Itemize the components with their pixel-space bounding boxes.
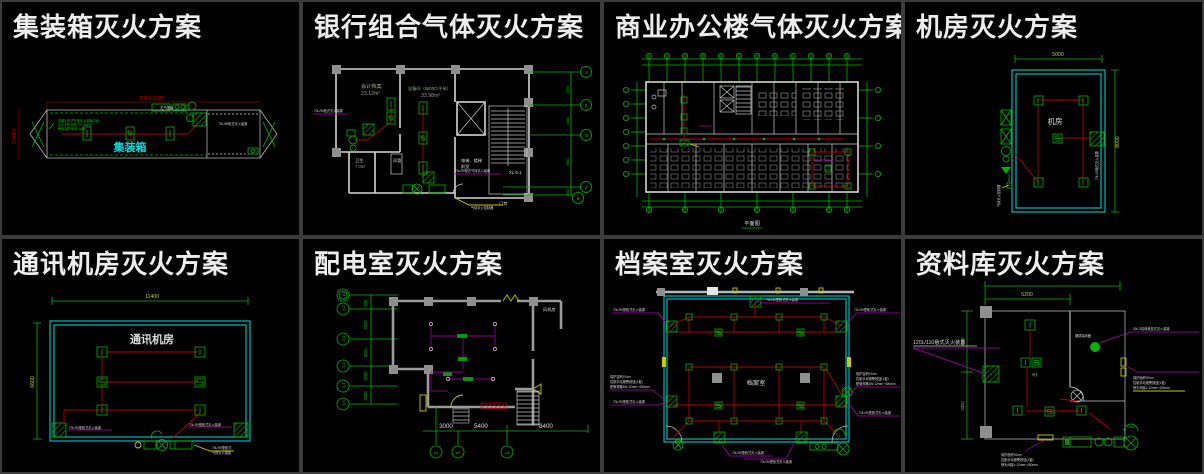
panel-container-plan[interactable]: 集装箱灭火方案 8960.9386 2348.0 — [0, 0, 301, 237]
svg-text:8400: 8400 — [539, 423, 553, 430]
svg-text:70L/90型柜式灭火装置: 70L/90型柜式灭火装置 — [613, 307, 645, 312]
tank-note: 贮气瓶组 — [161, 105, 175, 110]
svg-text:B-2: B-2 — [342, 335, 346, 340]
panel-power-room-plan[interactable]: 配电室灭火方案 1W B-1 B-2 B-4 B-5 B-6 330 4600 … — [301, 237, 602, 474]
duct-label: 风管 — [393, 157, 401, 164]
svg-text:卫生: 卫生 — [355, 157, 363, 163]
smoke-detector: 烟感探测器 30L/3挂墙悬挂式灭火装置 — [1075, 326, 1199, 352]
page-title: 商业办公楼气体灭火方案 — [615, 7, 903, 44]
svg-text:a-5: a-5 — [456, 451, 461, 455]
svg-text:会计档案: 会计档案 — [361, 82, 383, 90]
svg-text:2200: 2200 — [363, 391, 368, 401]
svg-text:保护面积S0:m²: 保护面积S0:m² — [1001, 452, 1022, 457]
elevator-shaft — [457, 102, 485, 135]
svg-text:23.12m²: 23.12m² — [361, 91, 380, 97]
svg-text:前室: 前室 — [461, 163, 469, 170]
dimension-lines: 5200 3000 3300 — [960, 281, 1120, 439]
cad-gallery: 集装箱灭火方案 8960.9386 2348.0 — [0, 0, 1204, 474]
svg-text:70L/90型柜式灭火装置: 70L/90型柜式灭火装置 — [732, 450, 764, 455]
svg-text:70L/90型柜式灭火装置: 70L/90型柜式灭火装置 — [766, 297, 798, 302]
svg-text:8000: 8000 — [1115, 136, 1121, 148]
svg-text:3300: 3300 — [960, 401, 965, 411]
sprinkler-piping — [429, 322, 496, 391]
cabinet-hatch: 70L/90柜式灭火装置 — [1090, 132, 1104, 180]
cabinet-note: 70L/90柜式灭火装置 — [219, 121, 248, 126]
fan-room-label: 风机房 — [543, 306, 556, 313]
panel-data-library-plan[interactable]: 资料库灭火方案 5200 3000 3300 — [903, 237, 1204, 474]
svg-text:120L/110悬式灭火装置: 120L/110悬式灭火装置 — [913, 338, 965, 346]
svg-text:控制手动报警按钮(1套): 控制手动报警按钮(1套) — [1001, 457, 1034, 462]
dim-top: 8960.9386 — [140, 96, 165, 102]
gas-piping — [64, 347, 205, 437]
svg-text:2400: 2400 — [566, 117, 570, 124]
hanging-extinguisher-left: 120L/110悬式灭火装置 — [913, 338, 1000, 382]
svg-text:70L/90型柜式灭火装置: 70L/90型柜式灭火装置 — [69, 425, 101, 430]
svg-text:设备间（5600C/平米）: 设备间（5600C/平米） — [408, 85, 451, 92]
svg-text:70L/90型柜式灭火装置: 70L/90型柜式灭火装置 — [613, 399, 645, 404]
svg-text:70L/90型柜式灭火装置: 70L/90型柜式灭火装置 — [854, 307, 886, 312]
svg-text:70L/90柜式灭火装置: 70L/90柜式灭火装置 — [314, 108, 343, 113]
svg-text:电梯、楼梯: 电梯、楼梯 — [461, 157, 482, 164]
page-title: 配电室灭火方案 — [314, 244, 503, 281]
svg-text:保护面积S0:m²: 保护面积S0:m² — [1133, 375, 1154, 380]
room-walls — [980, 306, 1125, 439]
svg-text:气体灭火装置: 气体灭火装置 — [212, 450, 231, 455]
room-label: 机房 — [1048, 116, 1063, 126]
svg-text:B-4: B-4 — [342, 362, 346, 367]
panel-bank-plan[interactable]: 银行组合气体灭火方案 — [301, 0, 602, 237]
svg-text:6600: 6600 — [30, 376, 36, 388]
panel-archive-room-plan[interactable]: 档案室灭火方案 档案室 — [602, 237, 903, 474]
dimension-lines: 11400 6600 — [30, 294, 248, 439]
page-title: 集装箱灭火方案 — [13, 7, 202, 44]
svg-text:配管规格DN:12mm~400mm: 配管规格DN:12mm~400mm — [610, 384, 650, 389]
svg-text:2000: 2000 — [363, 371, 368, 381]
svg-text:70L/90柜式灭火装置: 70L/90柜式灭火装置 — [1094, 151, 1099, 180]
dim-left: 2348.0 — [12, 128, 18, 144]
svg-text:气体灭火控制器: 气体灭火控制器 — [471, 205, 494, 210]
svg-text:1: 1 — [585, 70, 588, 75]
page-title: 机房灭火方案 — [916, 7, 1078, 44]
gas-piping — [1015, 96, 1090, 187]
svg-text:保护容积V0:m³: 保护容积V0:m³ — [856, 371, 877, 376]
svg-text:70L/90型柜式: 70L/90型柜式 — [212, 445, 232, 450]
svg-text:烟感探测器: 烟感探测器 — [1075, 333, 1092, 338]
svg-text:B: B — [577, 196, 580, 201]
svg-text:1W: 1W — [342, 292, 346, 297]
panel-telecom-room-plan[interactable]: 通讯机房灭火方案 11400 6600 通讯机房 — [0, 237, 301, 474]
svg-text:配管规格DN:12mm~400mm: 配管规格DN:12mm~400mm — [856, 381, 896, 386]
svg-text:门禁: 门禁 — [499, 200, 507, 207]
stairs — [489, 106, 527, 194]
panel-machine-room-plan[interactable]: 机房灭火方案 5000 8000 — [903, 0, 1204, 237]
svg-text:B-6: B-6 — [342, 400, 346, 405]
cabinet-hatch-right: 70L/90型柜式灭火装置 — [188, 422, 248, 437]
svg-text:600: 600 — [566, 189, 570, 195]
svg-text:30L/3挂墙悬挂式灭火装置: 30L/3挂墙悬挂式灭火装置 — [1133, 326, 1170, 331]
svg-text:控制手动报警按钮(1套): 控制手动报警按钮(1套) — [856, 376, 889, 381]
room-label: 通讯机房 — [130, 332, 174, 346]
axis-left: 1W B-1 B-2 B-4 B-5 B-6 330 4600 3100 200… — [337, 289, 398, 410]
svg-text:4: 4 — [585, 133, 588, 138]
svg-text:33.98m²: 33.98m² — [421, 93, 440, 99]
svg-text:控制手动报警按钮(1套): 控制手动报警按钮(1套) — [1133, 380, 1166, 385]
page-title: 资料库灭火方案 — [916, 244, 1105, 281]
panel-office-plan[interactable]: 商业办公楼气体灭火方案 — [602, 0, 903, 237]
valve-assembly: 70L/90型柜式 气体灭火装置 — [135, 431, 234, 455]
wall-devices-right: 保护面积S0:m² 控制手动报警按钮(1套) 喷头间距L:12mm~400mm — [1121, 358, 1199, 391]
svg-text:保护容积V0:m³: 保护容积V0:m³ — [610, 374, 631, 379]
svg-text:11400: 11400 — [145, 294, 159, 300]
svg-text:B-5: B-5 — [342, 382, 346, 387]
bottom-devices: 保护面积S0:m² 控制手动报警按钮(1套) 喷头间距L:12mm~400mm — [1001, 424, 1138, 467]
svg-text:控制手动报警按钮(1套): 控制手动报警按钮(1套) — [610, 379, 643, 384]
svg-text:5400: 5400 — [474, 423, 488, 430]
gas-piping: 喷头 — [1013, 320, 1110, 429]
svg-text:喷头保护半径≤4.5m: 喷头保护半径≤4.5m — [58, 126, 86, 131]
svg-text:a-6: a-6 — [505, 451, 510, 455]
cabinet-hatch-left: 70L/90型柜式灭火装置 — [52, 423, 112, 437]
svg-text:5000: 5000 — [1052, 52, 1064, 58]
gas-piping — [666, 302, 847, 437]
svg-text:3000: 3000 — [439, 423, 453, 430]
svg-text:7.0m²: 7.0m² — [355, 164, 366, 169]
page-title: 通讯机房灭火方案 — [13, 244, 229, 281]
page-title: 档案室灭火方案 — [615, 244, 804, 281]
svg-text:70L/90型柜式灭火装置: 70L/90型柜式灭火装置 — [189, 422, 221, 427]
svg-text:3600: 3600 — [566, 158, 570, 165]
svg-text:a-4: a-4 — [434, 451, 439, 455]
svg-text:2: 2 — [585, 103, 588, 108]
svg-text:喷头间距L:12mm~400mm: 喷头间距L:12mm~400mm — [1133, 385, 1170, 390]
svg-text:4600: 4600 — [363, 320, 368, 330]
svg-text:2: 2 — [585, 185, 588, 190]
svg-text:2300: 2300 — [566, 86, 570, 93]
spec-note: 说明1:柜式气体灭火装置(3台) 灭火剂贮存压力2.5MPa 喷头保护半径≤4.… — [49, 118, 100, 131]
caption: 平面图 — [742, 220, 762, 228]
svg-text:3100: 3100 — [363, 348, 368, 358]
control-equipment — [1001, 110, 1012, 188]
svg-text:XL-5-1: XL-5-1 — [509, 170, 522, 175]
svg-text:B-1: B-1 — [342, 305, 346, 310]
svg-text:330: 330 — [363, 299, 368, 307]
svg-text:5200: 5200 — [1021, 292, 1033, 298]
svg-text:气体灭火控制器: 气体灭火控制器 — [996, 184, 1001, 207]
svg-text:70L/90型柜式灭火装置: 70L/90型柜式灭火装置 — [859, 410, 891, 415]
svg-text:70L/90型柜式灭火装置: 70L/90型柜式灭火装置 — [760, 459, 792, 464]
svg-text:喷头: 喷头 — [1032, 372, 1039, 377]
room-label: 档案室 — [747, 379, 766, 387]
room-label: 集装箱 — [113, 140, 147, 154]
axis-bottom: 3000 5400 8400 a-4 a-5 a-6 — [423, 407, 588, 458]
svg-text:喷头间距L:12mm~400mm: 喷头间距L:12mm~400mm — [1001, 462, 1038, 467]
page-title: 银行组合气体灭火方案 — [314, 7, 584, 44]
svg-text:平面图: 平面图 — [744, 220, 760, 227]
cabinet-hatch-bottom — [403, 172, 463, 194]
cabinet-hatch — [193, 113, 206, 126]
